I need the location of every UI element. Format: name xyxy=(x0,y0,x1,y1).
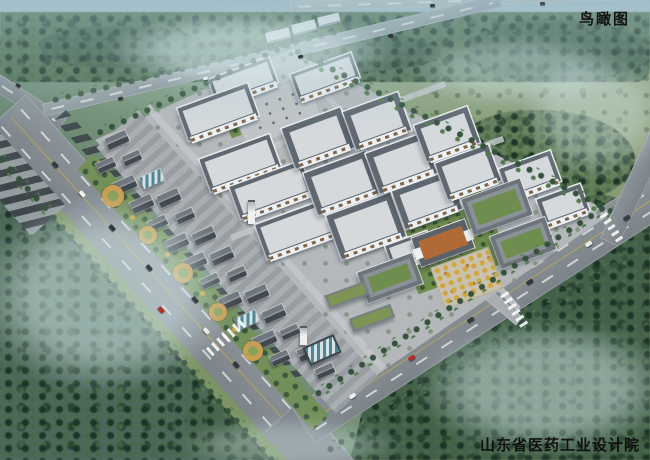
fog-patch xyxy=(110,14,390,88)
fog-patch xyxy=(180,420,400,460)
gate-tower xyxy=(248,200,255,224)
park-circular-plaza xyxy=(243,341,263,361)
design-institute-credit: 山东省医药工业设计院 xyxy=(480,434,640,455)
car xyxy=(540,2,545,5)
fog-patch xyxy=(415,38,615,104)
drawing-title: 鸟瞰图 xyxy=(579,8,630,29)
gate-tower xyxy=(300,326,307,345)
car xyxy=(430,4,435,7)
aerial-rendering-scene: 鸟瞰图 山东省医药工业设计院 xyxy=(0,0,650,460)
fog-patch xyxy=(420,322,650,452)
